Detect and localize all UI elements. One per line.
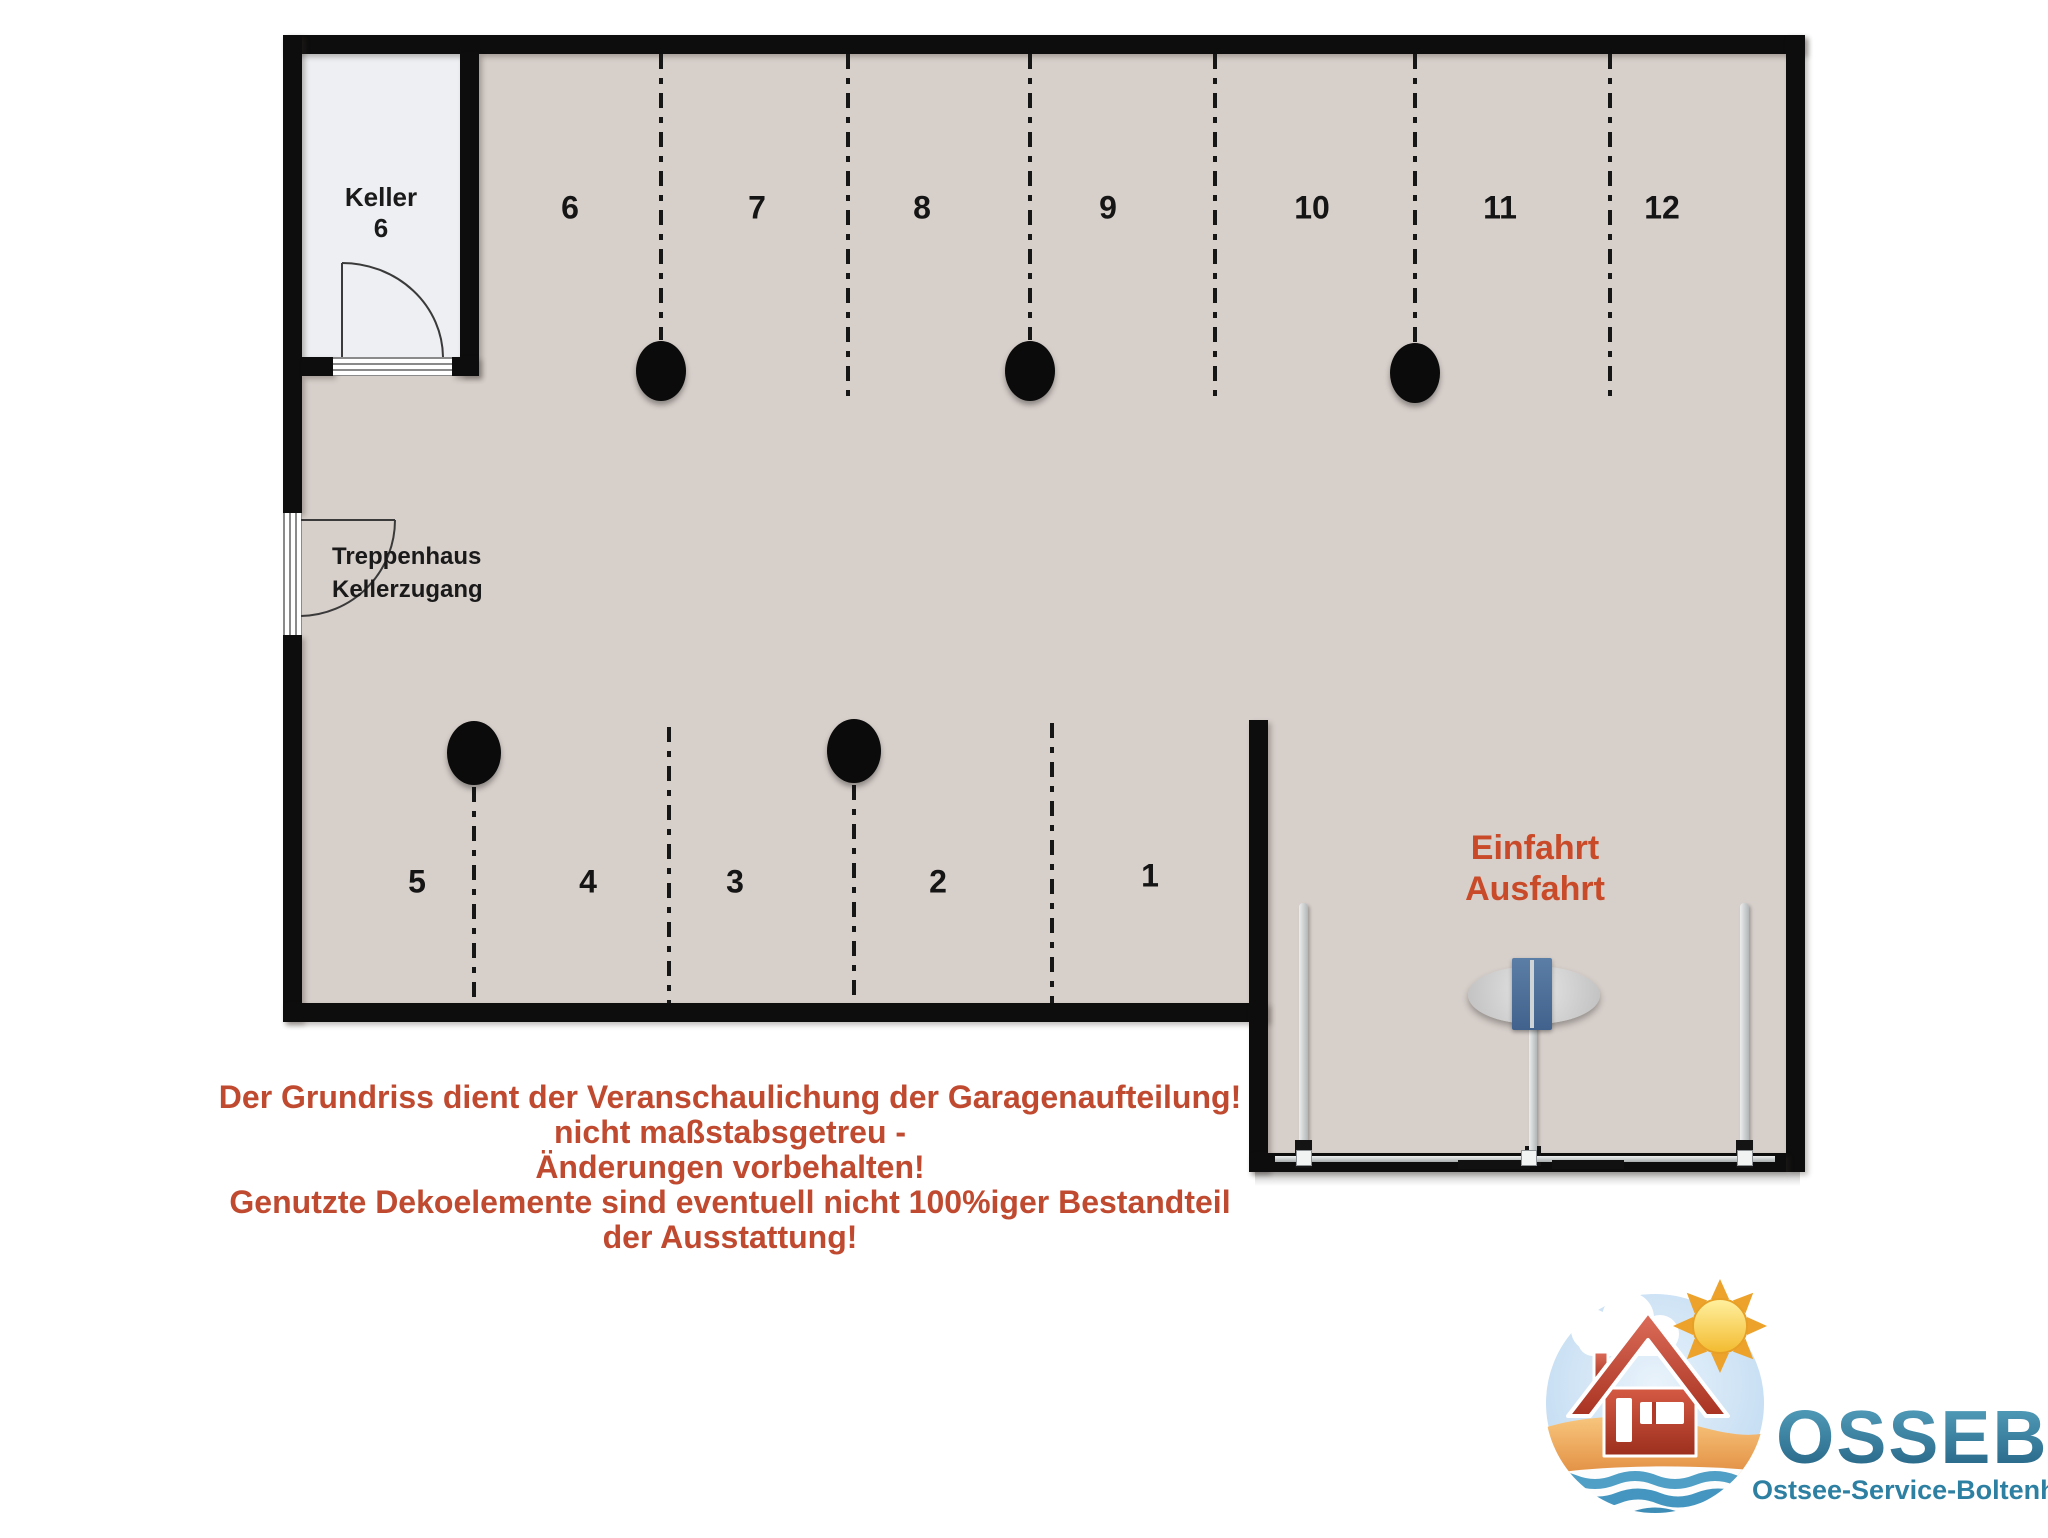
space-1-label: 1 xyxy=(1141,858,1159,895)
keller-wall-bottom-right xyxy=(452,357,479,376)
column xyxy=(1390,343,1440,403)
keller-room-name: Keller xyxy=(345,182,417,213)
stairs-label-line2: Kellerzugang xyxy=(332,573,483,606)
space-12-label: 12 xyxy=(1644,190,1680,227)
divider-11-12 xyxy=(1608,54,1612,404)
gate-connector-left xyxy=(1296,1150,1312,1166)
stairs-door-threshold xyxy=(283,513,302,635)
divider-3-2 xyxy=(852,785,856,1003)
divider-5-4 xyxy=(472,787,476,1003)
column xyxy=(1005,341,1055,401)
space-3-label: 3 xyxy=(726,864,744,901)
entrance-label: Einfahrt Ausfahrt xyxy=(1465,828,1605,910)
gate-connector-right xyxy=(1737,1150,1753,1166)
entrance-wall-shadow xyxy=(1255,1172,1800,1186)
space-4-label: 4 xyxy=(579,864,597,901)
stairs-label: Treppenhaus Kellerzugang xyxy=(332,540,483,606)
wall-entrance-left xyxy=(1249,720,1268,1172)
gate-post-left xyxy=(1299,903,1308,1155)
column xyxy=(447,721,501,785)
space-2-label: 2 xyxy=(929,864,947,901)
keller-wall-bottom-left xyxy=(302,357,333,376)
divider-7-8 xyxy=(846,54,850,402)
space-11-label: 11 xyxy=(1483,190,1517,227)
gate-motor-box-line xyxy=(1530,960,1534,1028)
space-8-label: 8 xyxy=(913,190,931,227)
space-7-label: 7 xyxy=(748,190,766,227)
space-9-label: 9 xyxy=(1099,190,1117,227)
wall-left-lower xyxy=(283,635,302,1022)
disclaimer-line-2: nicht maßstabsgetreu - xyxy=(219,1115,1241,1150)
wall-left-upper xyxy=(283,35,302,513)
divider-8-9 xyxy=(1028,54,1032,340)
divider-4-3 xyxy=(667,727,671,1003)
stairs-label-line1: Treppenhaus xyxy=(332,540,483,573)
wall-bottom-main xyxy=(283,1003,1268,1022)
entrance-label-line2: Ausfahrt xyxy=(1465,869,1605,910)
disclaimer-text: Der Grundriss dient der Veranschaulichun… xyxy=(219,1080,1241,1255)
gate-post-right xyxy=(1740,903,1749,1155)
divider-2-1 xyxy=(1050,723,1054,1003)
entrance-label-line1: Einfahrt xyxy=(1465,828,1605,869)
sun-icon xyxy=(1673,1279,1767,1373)
divider-10-11 xyxy=(1413,54,1417,342)
column xyxy=(636,341,686,401)
floor-plan-page: 6 7 8 9 10 11 12 5 4 3 2 1 Keller 6 Trep… xyxy=(0,0,2048,1538)
space-6-label: 6 xyxy=(561,190,579,227)
logo-title: OSSEBO xyxy=(1776,1395,2048,1479)
space-10-label: 10 xyxy=(1294,190,1330,227)
gate-door-leaf-left xyxy=(1458,1160,1530,1169)
gate-door-leaf-right xyxy=(1552,1160,1624,1169)
keller-room-number: 6 xyxy=(345,213,417,244)
divider-9-10 xyxy=(1213,54,1217,402)
keller-door-threshold xyxy=(333,357,452,376)
wall-top xyxy=(283,35,1805,54)
disclaimer-line-1: Der Grundriss dient der Veranschaulichun… xyxy=(219,1080,1241,1115)
wall-right xyxy=(1786,35,1805,1172)
gate-connector-center xyxy=(1521,1150,1537,1166)
disclaimer-line-3: Änderungen vorbehalten! xyxy=(219,1150,1241,1185)
logo-subtitle: Ostsee-Service-Boltenhagen Gm xyxy=(1752,1475,2048,1505)
divider-6-7 xyxy=(659,54,663,340)
keller-wall-right xyxy=(460,53,479,376)
disclaimer-line-5: der Ausstattung! xyxy=(219,1220,1241,1255)
ossebo-logo: OSSEBO Ostsee-Service-Boltenhagen Gm xyxy=(1540,1266,2048,1538)
space-5-label: 5 xyxy=(408,864,426,901)
column xyxy=(827,719,881,783)
disclaimer-line-4: Genutzte Dekoelemente sind eventuell nic… xyxy=(219,1185,1241,1220)
keller-room-label: Keller 6 xyxy=(345,182,417,244)
